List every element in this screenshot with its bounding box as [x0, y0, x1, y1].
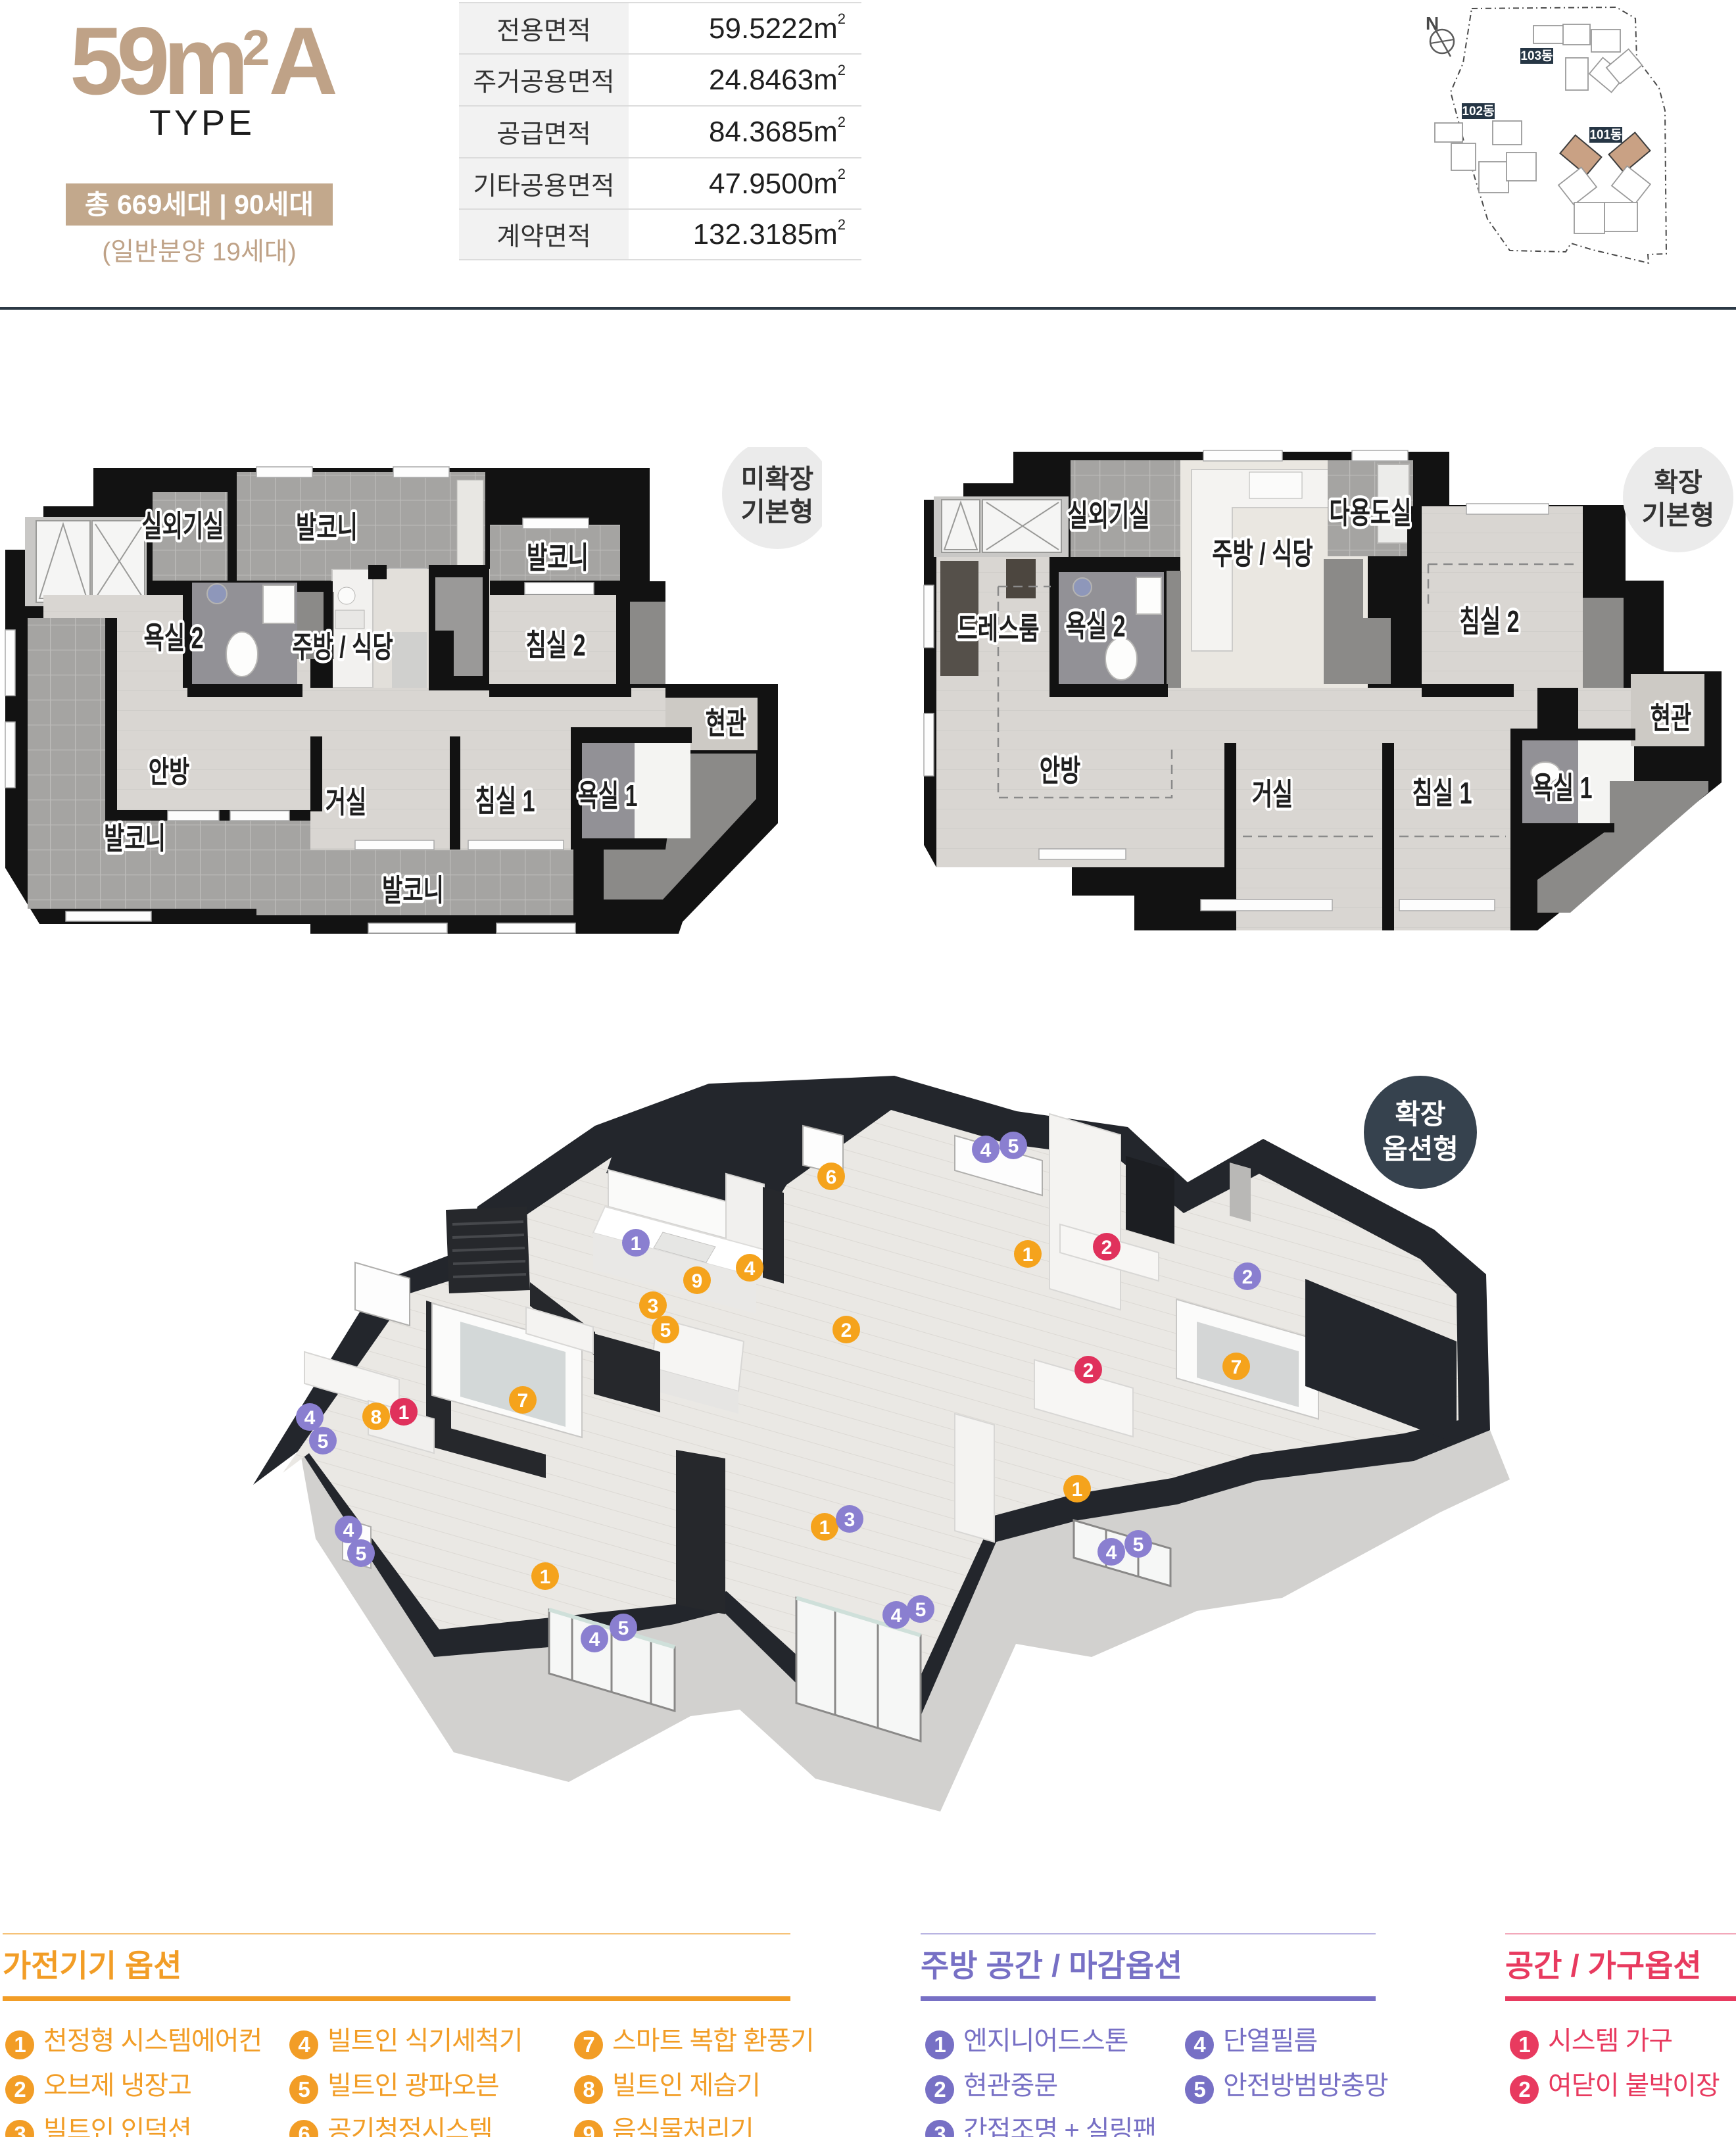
svg-text:주방 / 식당: 주방 / 식당 — [292, 630, 393, 664]
svg-text:옵션형: 옵션형 — [1382, 1134, 1459, 1165]
svg-text:5: 5 — [1133, 1534, 1144, 1556]
svg-text:7: 7 — [1231, 1357, 1242, 1378]
svg-text:미확장: 미확장 — [741, 465, 814, 494]
svg-text:5: 5 — [318, 1431, 329, 1453]
svg-text:5: 5 — [660, 1320, 671, 1341]
svg-text:침실 1: 침실 1 — [1412, 776, 1472, 810]
svg-text:7: 7 — [518, 1390, 529, 1412]
svg-text:확장: 확장 — [1395, 1099, 1445, 1130]
svg-text:4: 4 — [980, 1140, 992, 1161]
svg-text:102동: 102동 — [1462, 105, 1494, 118]
svg-text:2: 2 — [1101, 1237, 1113, 1259]
svg-text:4: 4 — [1106, 1542, 1117, 1564]
svg-text:발코니: 발코니 — [296, 510, 358, 544]
svg-text:5: 5 — [915, 1599, 927, 1621]
svg-text:1: 1 — [1023, 1244, 1034, 1266]
svg-text:안방: 안방 — [1040, 754, 1081, 788]
svg-text:주방 / 식당: 주방 / 식당 — [1212, 537, 1313, 571]
svg-text:4: 4 — [589, 1629, 600, 1650]
svg-text:1: 1 — [631, 1233, 642, 1255]
svg-text:101동: 101동 — [1589, 128, 1622, 142]
svg-text:거실: 거실 — [1252, 777, 1293, 811]
svg-text:N: N — [1426, 13, 1439, 34]
svg-text:거실: 거실 — [325, 785, 367, 819]
svg-text:침실 2: 침실 2 — [1460, 604, 1520, 638]
svg-text:실외기실: 실외기실 — [1067, 498, 1149, 533]
svg-text:욕실 1: 욕실 1 — [1533, 771, 1593, 805]
svg-text:기본형: 기본형 — [741, 498, 813, 527]
svg-text:발코니: 발코니 — [527, 540, 589, 575]
svg-text:기본형: 기본형 — [1642, 501, 1714, 530]
svg-text:침실 1: 침실 1 — [475, 784, 535, 818]
svg-text:확장: 확장 — [1654, 468, 1702, 497]
svg-text:발코니: 발코니 — [104, 821, 166, 855]
svg-text:9: 9 — [692, 1270, 703, 1292]
svg-text:1: 1 — [819, 1517, 831, 1539]
svg-text:3: 3 — [844, 1509, 856, 1531]
svg-text:2: 2 — [841, 1320, 852, 1341]
svg-text:드레스룸: 드레스룸 — [957, 612, 1039, 646]
svg-text:5: 5 — [618, 1618, 629, 1639]
svg-text:현관: 현관 — [706, 706, 747, 740]
svg-text:4: 4 — [744, 1258, 756, 1280]
svg-text:욕실 2: 욕실 2 — [1066, 609, 1126, 643]
svg-text:8: 8 — [371, 1406, 382, 1428]
svg-text:1: 1 — [398, 1402, 410, 1424]
svg-text:욕실 1: 욕실 1 — [578, 779, 638, 813]
svg-text:현관: 현관 — [1651, 701, 1692, 735]
svg-text:3: 3 — [648, 1295, 659, 1317]
svg-text:4: 4 — [343, 1520, 354, 1541]
svg-text:실외기실: 실외기실 — [141, 509, 224, 543]
svg-text:다용도실: 다용도실 — [1329, 496, 1411, 530]
svg-text:4: 4 — [891, 1605, 902, 1627]
svg-text:1: 1 — [540, 1566, 551, 1588]
svg-text:1: 1 — [1072, 1479, 1083, 1501]
svg-text:욕실 2: 욕실 2 — [144, 621, 204, 655]
svg-text:5: 5 — [1008, 1136, 1019, 1157]
svg-text:발코니: 발코니 — [382, 873, 444, 907]
svg-text:4: 4 — [304, 1407, 316, 1429]
svg-text:5: 5 — [356, 1543, 367, 1565]
svg-text:침실 2: 침실 2 — [526, 628, 586, 662]
svg-text:103동: 103동 — [1520, 49, 1553, 63]
svg-text:6: 6 — [826, 1166, 837, 1188]
svg-text:안방: 안방 — [149, 755, 190, 789]
svg-text:2: 2 — [1242, 1266, 1253, 1288]
svg-text:2: 2 — [1083, 1360, 1094, 1381]
